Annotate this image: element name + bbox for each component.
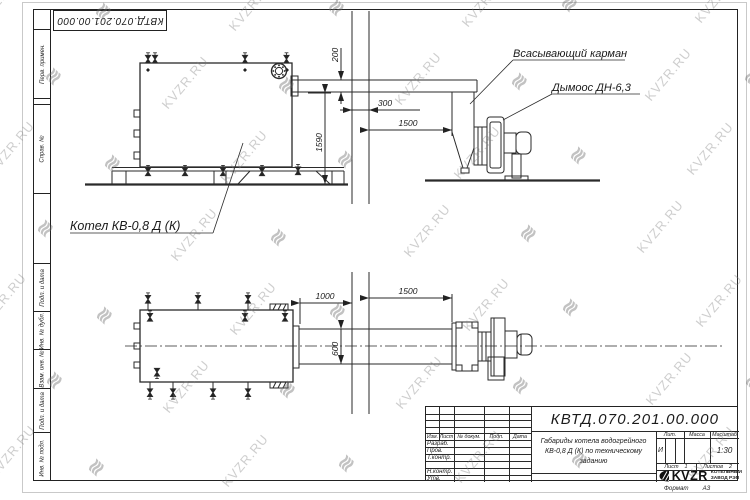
row-nkontr: Н.контр.: [427, 468, 454, 475]
row-razrab: Разраб.: [427, 440, 454, 447]
side-view: [70, 11, 640, 233]
label-fan: Дымоос ДН-6,3: [550, 82, 632, 94]
plan-view: [125, 272, 723, 414]
lit-value: И: [656, 438, 665, 463]
flange-stub-bottom: [270, 382, 288, 388]
flange-stub-top: [270, 304, 288, 310]
label-suction-pocket: Всасывающий карман: [513, 48, 627, 60]
sheet-cell: Лист 1: [656, 463, 696, 470]
title-description: Габариды котела водогрейного КВ-0,8 Д (К…: [532, 433, 655, 471]
wall-side: [352, 11, 369, 204]
col-list: Лист: [439, 433, 454, 440]
dim-text-1500-top: 1500: [399, 118, 418, 128]
col-izm: Изм.: [426, 433, 439, 440]
dim-wall-to-fan-plan-1500: [369, 294, 452, 322]
dim-text-1590: 1590: [314, 133, 324, 152]
lit-header: Лит.: [656, 431, 684, 438]
company-name: КОТЕЛЬНЫЙ ЗАВОД РЭП: [711, 470, 742, 482]
col-podp: Подп.: [484, 433, 509, 440]
row-utv: Утв.: [427, 475, 454, 482]
dim-text-600: 600: [330, 342, 340, 356]
dim-text-1000: 1000: [316, 291, 335, 301]
mass-header: Масса: [684, 431, 710, 438]
dim-text-200: 200: [330, 48, 340, 63]
label-boiler: Котел КВ-0,8 Д (К): [70, 219, 180, 233]
sheets-cell: Листов 2: [696, 463, 739, 470]
suction-pocket: [452, 92, 474, 173]
row-prov: Пров.: [427, 447, 454, 454]
title-doc-number: КВТД.070.201.00.000: [531, 407, 739, 431]
company-logo-text: KVZR: [672, 470, 708, 482]
smoke-exhauster-side: [474, 117, 531, 180]
dim-boiler-to-wall-1000: [300, 298, 352, 324]
title-block: КВТД.070.201.00.000 Изм. Лист № докум. П…: [425, 406, 738, 481]
dim-text-1500-plan: 1500: [399, 286, 418, 296]
scale-header: Масштаб: [710, 431, 739, 438]
kvzr-logo-icon: [659, 470, 669, 482]
gas-duct-plan: [293, 326, 452, 368]
boiler-side-outline: [134, 53, 301, 176]
smoke-exhauster-plan: [452, 318, 532, 380]
company-cell: KVZR КОТЕЛЬНЫЙ ЗАВОД РЭП: [656, 470, 742, 482]
row-tkontr: Т.контр.: [427, 454, 454, 461]
col-data: Дата: [509, 433, 531, 440]
wall-plan: [352, 272, 369, 414]
dim-text-300: 300: [378, 98, 392, 108]
format-note: Формат А3: [664, 485, 710, 492]
scale-value: 1:30: [710, 438, 739, 463]
col-ndokum: № докум.: [454, 433, 484, 440]
